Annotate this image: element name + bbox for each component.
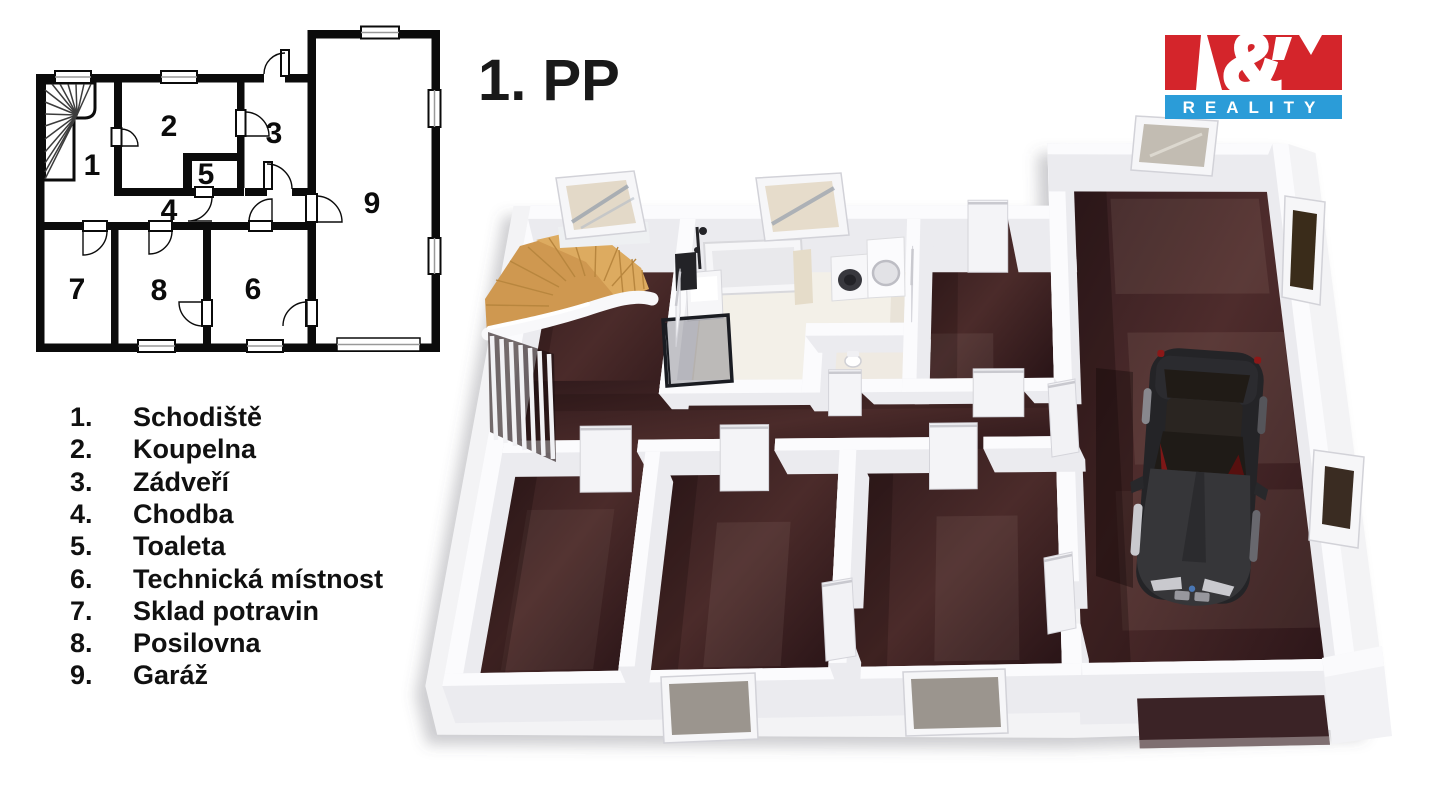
svg-text:4.: 4. (70, 499, 93, 529)
svg-text:Schodiště: Schodiště (133, 402, 262, 432)
svg-text:1.: 1. (70, 402, 93, 432)
svg-text:1: 1 (84, 149, 101, 182)
svg-text:Zádveří: Zádveří (133, 467, 231, 497)
svg-text:REALITY: REALITY (1183, 98, 1326, 117)
svg-text:1. PP: 1. PP (478, 48, 620, 113)
svg-text:3.: 3. (70, 467, 93, 497)
svg-text:8: 8 (151, 274, 168, 307)
svg-text:9: 9 (364, 187, 381, 220)
svg-text:Technická místnost: Technická místnost (133, 564, 383, 594)
svg-text:2: 2 (161, 110, 178, 143)
svg-text:5.: 5. (70, 531, 93, 561)
svg-text:6.: 6. (70, 564, 93, 594)
svg-text:Koupelna: Koupelna (133, 434, 257, 464)
svg-text:Garáž: Garáž (133, 660, 208, 690)
svg-text:8.: 8. (70, 628, 93, 658)
svg-text:Toaleta: Toaleta (133, 531, 227, 561)
svg-text:5: 5 (198, 158, 215, 191)
svg-text:7.: 7. (70, 596, 93, 626)
svg-text:Chodba: Chodba (133, 499, 234, 529)
svg-text:2.: 2. (70, 434, 93, 464)
svg-text:3: 3 (266, 117, 283, 150)
svg-text:7: 7 (69, 273, 86, 306)
svg-text:Posilovna: Posilovna (133, 628, 262, 658)
svg-text:4: 4 (161, 194, 178, 227)
svg-text:6: 6 (245, 273, 262, 306)
svg-text:Sklad potravin: Sklad potravin (133, 596, 319, 626)
svg-text:9.: 9. (70, 660, 93, 690)
